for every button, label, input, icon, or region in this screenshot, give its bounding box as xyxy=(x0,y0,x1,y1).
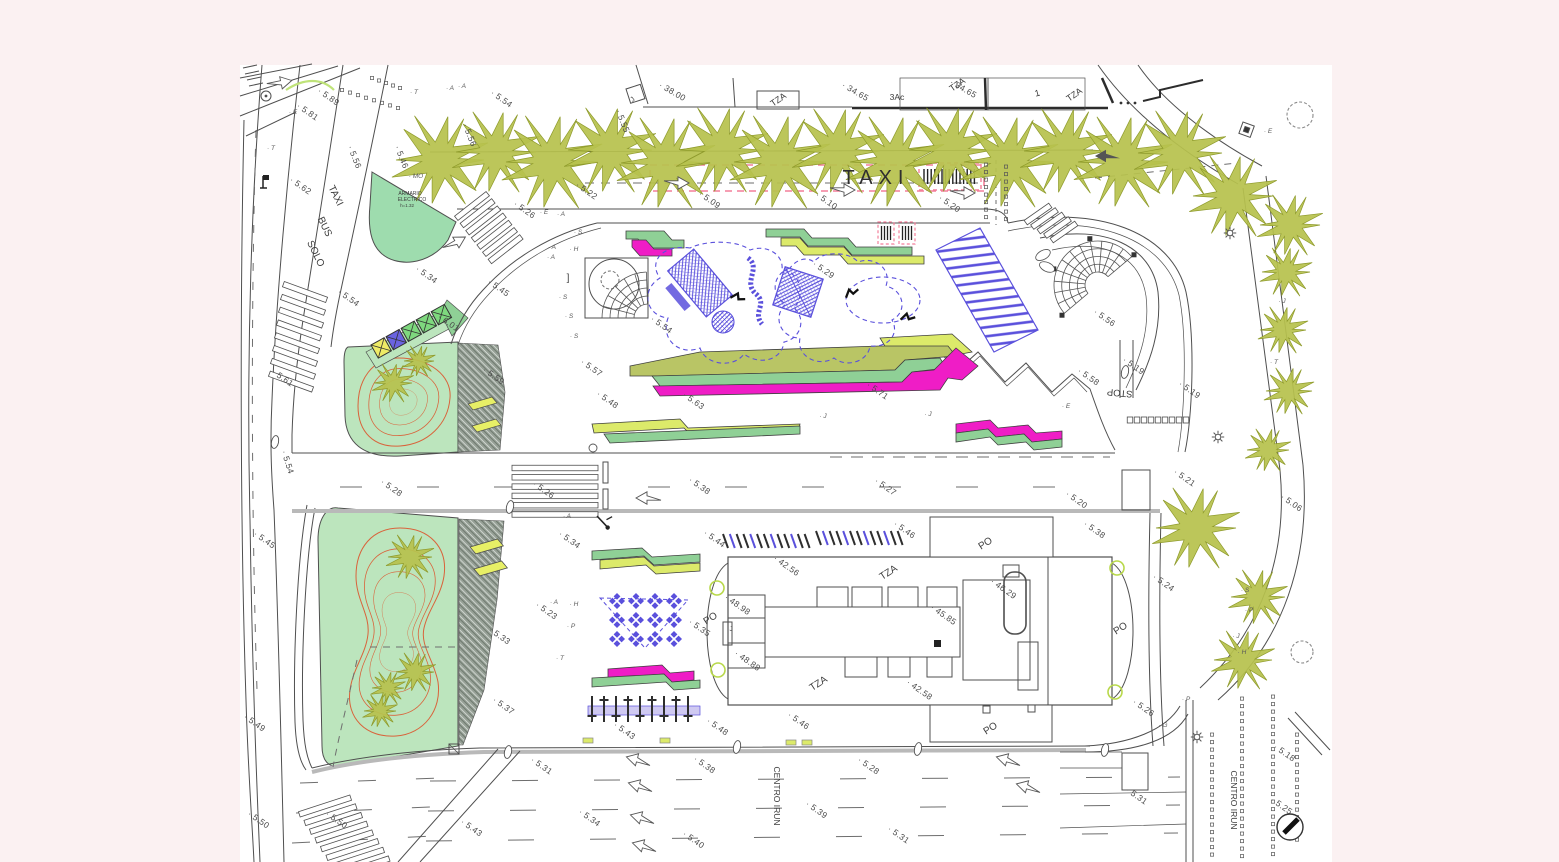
survey-letter: · A xyxy=(550,599,558,606)
road-marker xyxy=(583,738,593,743)
street-name-centro-irun-1: CENTRO IRUN xyxy=(772,766,782,825)
survey-letter: · A xyxy=(563,513,571,520)
crosswalk-stripe xyxy=(512,512,598,518)
stair-anchor xyxy=(1087,236,1092,241)
deciduous-tree-icon xyxy=(1287,102,1313,128)
play-equipment-blob xyxy=(712,311,734,333)
survey-letter: · P xyxy=(1245,607,1254,614)
survey-letter: · P xyxy=(567,623,576,630)
survey-letter: · E xyxy=(289,109,298,116)
portico-top-rect xyxy=(930,517,1053,557)
survey-letter: · T xyxy=(1270,359,1279,366)
crosswalk-stripe xyxy=(1148,417,1154,423)
survey-letter: · J xyxy=(819,413,827,420)
armario-electrico-line3: h=1.32 xyxy=(400,203,414,208)
crosswalk-stripe xyxy=(512,484,598,490)
survey-letter: · T xyxy=(556,655,565,662)
crosswalk-stripe xyxy=(512,475,598,481)
road-marker xyxy=(802,740,812,745)
road-marker xyxy=(660,738,670,743)
crosswalk-stripe xyxy=(1162,417,1168,423)
survey-letter: · E xyxy=(540,209,549,216)
site-plan-drawing: TAXITAXIBUSSOLOARMARIOELECTRICOh=1.32STO… xyxy=(0,0,1559,862)
survey-letter: · E xyxy=(1264,128,1273,135)
crosswalk-stripe xyxy=(1176,417,1182,423)
deciduous-tree-icon xyxy=(1291,641,1313,663)
survey-letter: · S xyxy=(565,313,574,320)
manhole-icon xyxy=(1277,814,1303,840)
survey-letter: · S xyxy=(1241,587,1250,594)
survey-j-building: J xyxy=(730,627,733,633)
survey-letter: · S xyxy=(559,294,568,301)
crosswalk-stripe xyxy=(1155,417,1161,423)
road-marker xyxy=(786,740,796,745)
survey-letter: · E xyxy=(1062,403,1071,410)
crosswalk-stripe xyxy=(1127,417,1133,423)
crosswalk-stripe xyxy=(512,465,598,471)
taxi-zone-label: TAXI xyxy=(843,167,910,189)
survey-letter: · S xyxy=(570,333,579,340)
survey-letter: · H xyxy=(1238,649,1247,656)
upper-lawn xyxy=(344,342,458,456)
survey-letter: · T xyxy=(267,145,276,152)
stop-marking: STOP xyxy=(1107,386,1134,399)
survey-letter: · G xyxy=(1158,722,1167,729)
survey-letter: · A xyxy=(446,85,454,92)
survey-letter: · A xyxy=(548,244,556,251)
bldg-3ac: 3Ac xyxy=(890,92,905,102)
survey-letter: · P xyxy=(1182,696,1191,703)
survey-letter: · H xyxy=(570,601,579,608)
crosswalk-stripe xyxy=(512,502,598,508)
crosswalk-stripe xyxy=(1183,417,1189,423)
survey-letter: · A xyxy=(557,211,565,218)
upper-gravel-hatch xyxy=(458,343,505,452)
survey-letter: · A xyxy=(458,83,466,90)
site-plan-svg: TAXITAXIBUSSOLOARMARIOELECTRICOh=1.32STO… xyxy=(0,0,1559,862)
crosswalk-stripe xyxy=(1134,417,1140,423)
street-name-centro-irun-2: CENTRO IRUN xyxy=(1229,770,1239,829)
survey-letter: · H xyxy=(570,246,579,253)
crosswalk-stripe xyxy=(1169,417,1175,423)
survey-letter: · A xyxy=(547,254,555,261)
survey-letter: · MO xyxy=(409,173,423,180)
survey-letter: · T xyxy=(410,89,419,96)
lower-lawn xyxy=(318,508,458,766)
survey-letter: · J xyxy=(1278,298,1286,305)
survey-letter: · J xyxy=(1232,633,1240,640)
survey-letter: · S xyxy=(574,229,583,236)
survey-letter: · J xyxy=(924,411,932,418)
stair-anchor xyxy=(1132,252,1137,257)
stair-anchor xyxy=(1059,313,1064,318)
bracket-mark: ] xyxy=(567,273,570,284)
crosswalk-stripe xyxy=(1141,417,1147,423)
